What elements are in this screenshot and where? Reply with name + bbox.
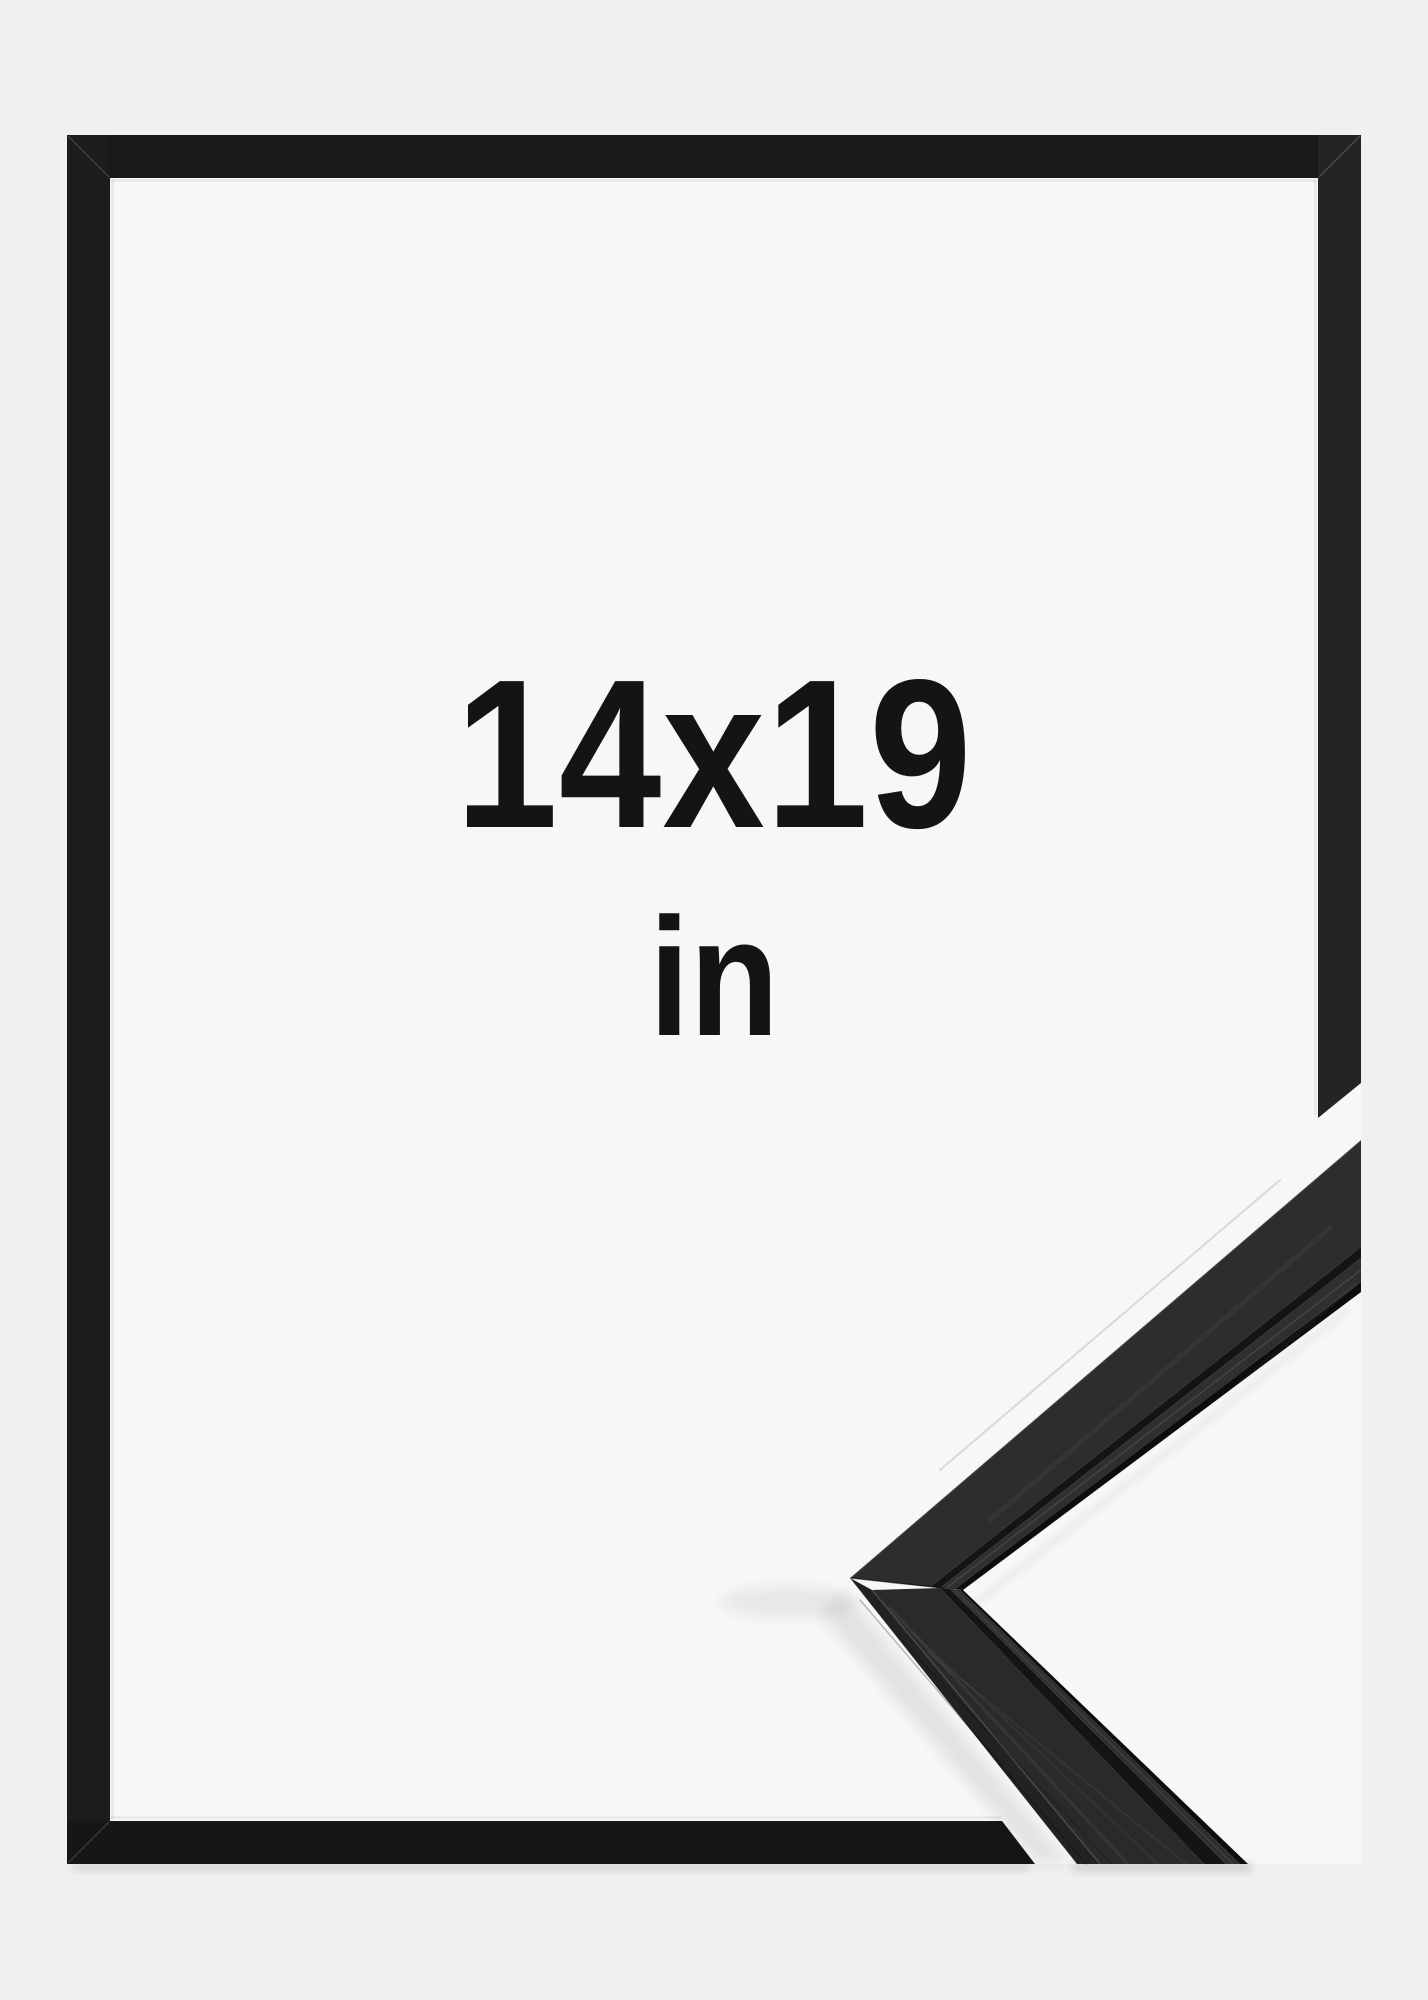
- moulding-cast-shadow-vertex: [720, 1586, 856, 1618]
- product-image: 14x19 in: [0, 0, 1428, 2000]
- inner-shadow-top: [111, 179, 1317, 182]
- inner-shadow-bottom: [111, 1816, 1001, 1819]
- frame-left-bar: [67, 135, 110, 1864]
- frame-top-bar: [67, 135, 1361, 178]
- frame-bottom-bar: [67, 1821, 1035, 1864]
- frame-graphic: [0, 0, 1428, 2000]
- frame-right-bar: [1318, 135, 1361, 1118]
- inner-shadow-left: [111, 179, 114, 1819]
- inner-shadow-right: [1314, 179, 1317, 1115]
